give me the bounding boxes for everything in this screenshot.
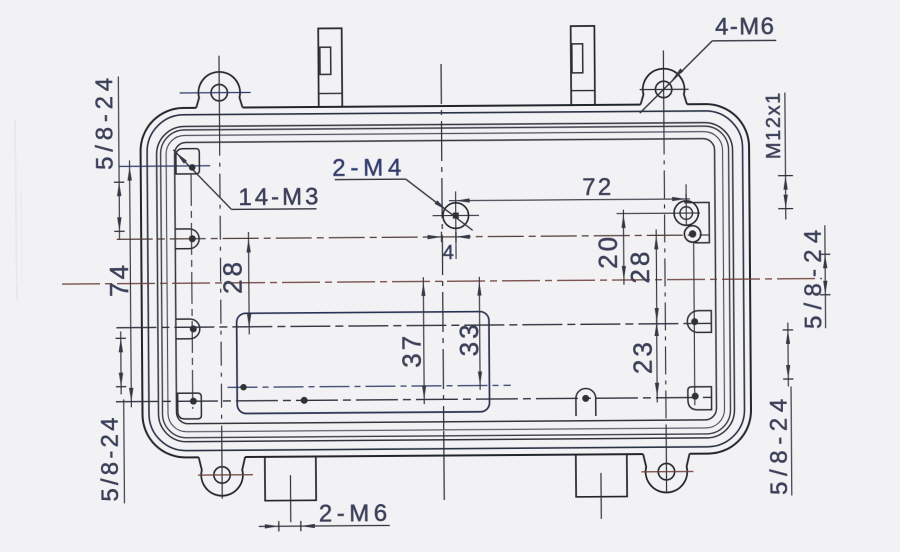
svg-text:2-M4: 2-M4 — [332, 154, 406, 182]
svg-text:37: 37 — [396, 333, 426, 368]
svg-text:5/8-24: 5/8-24 — [97, 414, 125, 501]
svg-text:4-M6: 4-M6 — [715, 13, 775, 40]
svg-text:5/8-24: 5/8-24 — [765, 393, 793, 495]
svg-text:33: 33 — [454, 321, 484, 356]
svg-text:20: 20 — [593, 234, 623, 269]
svg-text:4: 4 — [443, 242, 454, 264]
svg-text:5/8-24: 5/8-24 — [800, 224, 828, 329]
svg-text:14-M3: 14-M3 — [238, 183, 321, 211]
svg-text:74: 74 — [104, 262, 134, 297]
svg-text:72: 72 — [582, 174, 613, 201]
svg-text:2-M6: 2-M6 — [319, 500, 392, 528]
svg-text:5/8-24: 5/8-24 — [91, 73, 119, 170]
svg-text:28: 28 — [625, 249, 655, 284]
svg-text:M12x1: M12x1 — [763, 91, 785, 159]
svg-text:23: 23 — [627, 339, 657, 374]
svg-text:28: 28 — [217, 259, 247, 294]
